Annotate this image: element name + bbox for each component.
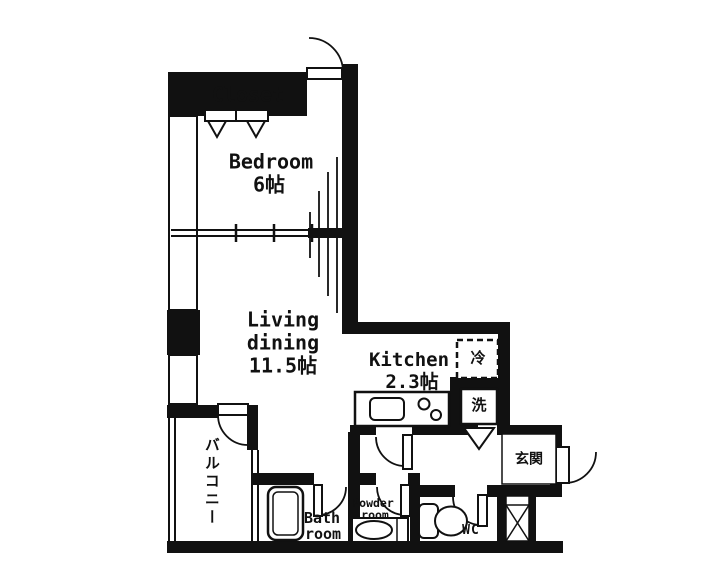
- kitchen-label: Kitchen: [369, 351, 449, 371]
- balcony-label: バルコニー: [203, 437, 219, 527]
- refrigerator-label: 冷: [470, 351, 485, 367]
- closet-label: Closet: [212, 85, 284, 106]
- bedroom-size: 6帖: [253, 175, 285, 196]
- entrance-door: [556, 447, 596, 483]
- washer-label: 洗: [471, 398, 486, 414]
- bedroom-door: [307, 38, 343, 79]
- living-label-line1: Living: [247, 310, 319, 331]
- powder-label-line2: room: [361, 509, 389, 521]
- bedroom-label: Bedroom: [229, 152, 313, 173]
- toilet: [419, 504, 467, 538]
- entrance-label: 玄関: [515, 453, 543, 468]
- washer-folding-door: [464, 428, 494, 449]
- floorplan: Closet Bedroom 6帖 Living dining 11.5帖 Ki…: [0, 0, 705, 583]
- closet-folding-doors: [205, 110, 268, 137]
- pipe-shaft: [506, 496, 529, 541]
- bath-label-line2: room: [305, 527, 341, 543]
- wc-label: WC: [462, 524, 480, 538]
- kitchen-counter: [355, 392, 449, 426]
- bathtub: [268, 487, 303, 540]
- living-size: 11.5帖: [249, 356, 317, 377]
- living-label-line2: dining: [247, 333, 319, 354]
- hall-door: [376, 435, 412, 469]
- kitchen-size: 2.3帖: [385, 373, 438, 393]
- balcony-door: [218, 404, 248, 445]
